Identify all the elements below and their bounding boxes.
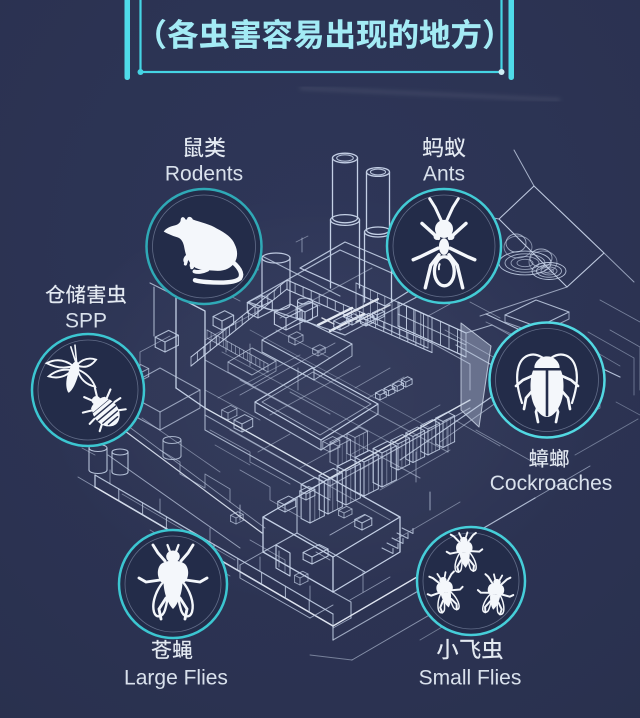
svg-text:Large Flies: Large Flies (124, 667, 228, 690)
svg-text:Cockroaches: Cockroaches (490, 472, 613, 495)
svg-text:Rodents: Rodents (165, 163, 243, 186)
svg-text:Small Flies: Small Flies (419, 667, 522, 690)
svg-text:Ants: Ants (423, 163, 465, 186)
svg-text:SPP: SPP (65, 310, 107, 333)
